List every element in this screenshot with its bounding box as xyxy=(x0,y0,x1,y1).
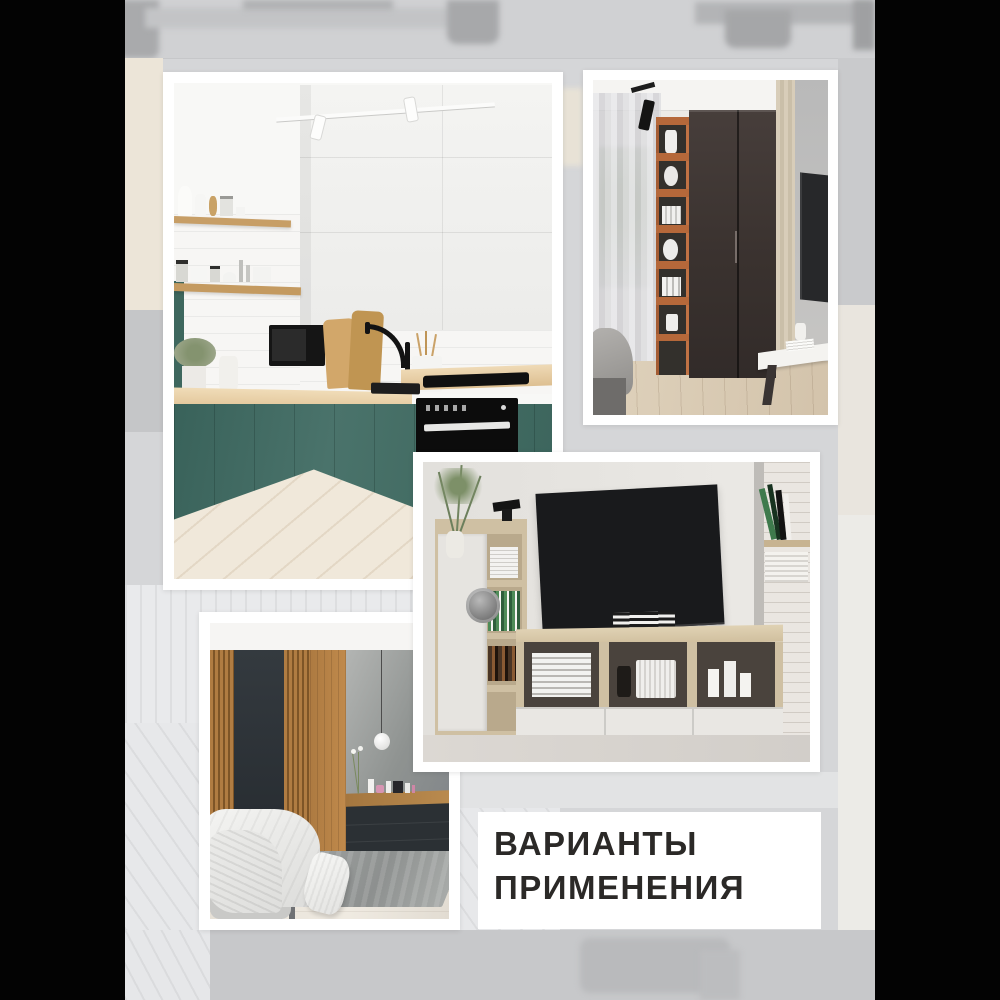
backdrop-grey-block-right xyxy=(838,58,875,305)
white-bowl xyxy=(223,272,236,282)
faucet-spout xyxy=(365,322,370,334)
oven-display xyxy=(426,405,469,411)
wood-bottle xyxy=(209,196,217,216)
black-clamp-lamp-head xyxy=(502,509,512,521)
photo-tv-scene xyxy=(423,462,810,762)
bench-side-oak xyxy=(516,642,524,709)
wardrobe-top-highlight xyxy=(689,110,776,112)
shelf-board xyxy=(656,225,691,233)
dark-jar xyxy=(617,666,630,697)
drawer-seam xyxy=(692,709,694,737)
shelf-dishware xyxy=(176,253,301,283)
kitchen-sink xyxy=(371,383,420,395)
decor-books xyxy=(662,277,681,296)
glass-jar xyxy=(220,196,233,216)
photo-wardrobe-room xyxy=(583,70,838,425)
oak-wide-panel xyxy=(310,650,346,854)
candle xyxy=(724,661,736,697)
wardrobe-door-gap xyxy=(737,110,739,378)
candlestick xyxy=(246,265,250,282)
backdrop-beige-gap xyxy=(560,88,583,166)
backdrop-grey-block-left xyxy=(125,310,163,432)
drawer-seam xyxy=(346,821,449,826)
shelf-books-top xyxy=(765,474,808,540)
backdrop-bottom-band xyxy=(210,930,875,1000)
cabinet-seam xyxy=(300,232,552,233)
candlestick xyxy=(239,260,243,282)
books-under-tv xyxy=(612,611,674,627)
candle xyxy=(708,669,719,697)
drawer-seam xyxy=(604,709,606,737)
cabinet-corner-shadow xyxy=(300,85,311,331)
cosmetic-lipstick xyxy=(412,785,415,793)
glass-jar-dark-lid xyxy=(176,260,188,282)
caption-line-1: ВАРИАНТЫ xyxy=(478,812,821,866)
decor-white-vase xyxy=(665,130,676,153)
cabinet-concrete-door xyxy=(438,534,486,731)
wood-shelf-board xyxy=(764,540,810,547)
kitchen-upper-cabinets xyxy=(300,85,552,331)
ceiling-lamp-silhouette xyxy=(725,10,791,48)
decor-metal-disc xyxy=(466,588,501,623)
backdrop-sofa-fabric-low xyxy=(125,930,210,1000)
cosmetic-box-dark xyxy=(393,781,403,793)
oven-handle xyxy=(424,421,510,431)
shelf-board xyxy=(656,117,691,125)
drawer-seam xyxy=(346,838,449,843)
shelf-board xyxy=(656,153,691,161)
cosmetics-group xyxy=(368,771,444,793)
lounge-floor xyxy=(423,735,810,762)
faucet-arc xyxy=(367,324,406,368)
white-cup xyxy=(236,207,245,216)
plant-foliage xyxy=(431,468,485,504)
glass-jar-dark-lid xyxy=(210,266,220,282)
flower-blossom xyxy=(351,749,356,754)
cabinet-seam xyxy=(300,157,552,158)
potted-plant xyxy=(174,338,216,368)
bench-divider-oak xyxy=(599,642,610,709)
plant-pot xyxy=(182,366,207,389)
flower-stem xyxy=(358,752,359,793)
bench-side-oak xyxy=(775,642,783,709)
cabinet-seam xyxy=(442,85,443,331)
backdrop-light-band xyxy=(460,772,838,808)
white-book-stack xyxy=(532,653,591,697)
decor-white-pot xyxy=(666,314,678,331)
wardrobe-handle xyxy=(735,231,737,263)
shelf-board xyxy=(656,189,691,197)
caption-box: ВАРИАНТЫ ПРИМЕНЕНИЯ xyxy=(478,812,821,929)
photo-wardrobe-scene xyxy=(593,80,828,415)
white-basket xyxy=(636,660,676,699)
wall-tv xyxy=(800,172,828,302)
white-vase xyxy=(219,356,238,391)
desk-decor-cup xyxy=(795,323,806,340)
cosmetic-jar-pink xyxy=(376,785,384,793)
white-pitcher xyxy=(195,194,206,216)
bench-body xyxy=(516,642,783,709)
candle xyxy=(740,673,751,697)
cabinet-shelf-board xyxy=(487,580,522,587)
white-magazines xyxy=(765,552,808,582)
decor-ring-vase xyxy=(664,166,678,187)
shelf-dishware xyxy=(178,185,288,217)
flower-blossom xyxy=(358,746,363,751)
white-vase xyxy=(178,186,192,216)
dark-wardrobe xyxy=(689,110,776,378)
utensil-stick xyxy=(425,331,427,355)
cosmetic-bottle xyxy=(386,781,391,793)
cosmetic-spray xyxy=(405,783,410,793)
plant-vase xyxy=(446,531,463,558)
microwave-door xyxy=(272,329,306,361)
orange-shelf-unit xyxy=(656,117,691,375)
shelf-board xyxy=(656,334,691,342)
ceiling-lamp-silhouette xyxy=(853,0,875,50)
bench-drawers xyxy=(516,707,783,737)
white-plate-stack xyxy=(253,267,271,282)
pendant-cord xyxy=(381,650,382,736)
caption-line-2: ПРИМЕНЕНИЯ xyxy=(478,866,821,910)
ceiling-lamp-silhouette xyxy=(447,0,499,44)
ceiling-track-bar xyxy=(243,0,393,10)
decor-books xyxy=(662,206,681,224)
shelf-board xyxy=(656,261,691,269)
white-bowl-stack xyxy=(191,268,207,282)
cosmetic-bottle xyxy=(368,779,374,793)
white-paper-stack xyxy=(490,547,518,578)
decor-ring-vase xyxy=(663,239,678,260)
bench-divider-oak xyxy=(687,642,698,709)
shelf-board xyxy=(656,297,691,305)
photo-tv-lounge xyxy=(413,452,820,772)
backdrop-light-right xyxy=(838,515,875,930)
tv-bench xyxy=(516,627,783,735)
poster-canvas: ВАРИАНТЫ ПРИМЕНЕНИЯ xyxy=(0,0,1000,1000)
bed-base xyxy=(593,378,626,415)
backdrop-furniture-silhouette xyxy=(700,950,740,1000)
wood-wall-panel xyxy=(776,80,795,361)
pillarbox-right xyxy=(875,0,1000,1000)
backdrop-beige-wall-left xyxy=(125,58,163,310)
oven-knob xyxy=(501,405,506,410)
knit-throw xyxy=(210,830,282,913)
sheer-curtain xyxy=(593,93,661,364)
backdrop-beige-right xyxy=(838,305,875,515)
pillarbox-left xyxy=(0,0,125,1000)
ceiling-track-bar xyxy=(145,8,485,28)
